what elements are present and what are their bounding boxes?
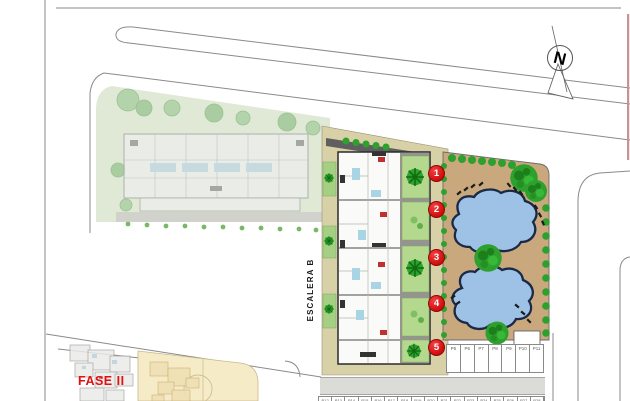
parking-stall: P20 (425, 397, 438, 401)
parking-stall: P26 (504, 397, 517, 401)
parking-stall: P24 (478, 397, 491, 401)
palm-tree-icon (406, 259, 424, 277)
bush-icon (485, 321, 508, 344)
right-road-curb-outer (578, 171, 630, 401)
bush-icon (474, 244, 502, 272)
fase-ii-label: FASE II (78, 374, 125, 388)
parking-row-upper: P5 P6 P7 P8 P9 P10 P11 (446, 344, 544, 373)
parking-stall: P14 (345, 397, 358, 401)
site-plan: N 1 2 3 4 5 ESCALERA B FASE II P5 P6 P7 … (0, 0, 630, 401)
bush-icon (525, 180, 547, 202)
plan-marker-2: 2 (428, 201, 445, 218)
parking-stall: P25 (491, 397, 504, 401)
parking-stall: P19 (412, 397, 425, 401)
plan-marker-3: 3 (428, 249, 445, 266)
parking-stall: P15 (359, 397, 372, 401)
bottom-left-area (70, 345, 258, 401)
parking-stall: P28 (531, 397, 544, 401)
parking-stall: P17 (385, 397, 398, 401)
parking-stall: P7 (475, 345, 489, 372)
plan-marker-4: 4 (428, 295, 445, 312)
pool-north (452, 190, 536, 253)
parking-stall: P18 (398, 397, 411, 401)
palm-tree-icon (406, 168, 424, 186)
pool-south (452, 266, 532, 329)
parking-stall: P27 (518, 397, 531, 401)
parking-stall: P12 (319, 397, 332, 401)
right-road-curb-inner (620, 257, 630, 401)
parking-stall: P6 (461, 345, 475, 372)
parking-stall: P21 (438, 397, 451, 401)
parking-stall: P13 (332, 397, 345, 401)
pool-area (441, 152, 550, 345)
phase2-area (96, 86, 330, 232)
parking-row-bottom-clip: P12 P13 P14 P15 P16 P17 P18 P19 P20 P21 … (318, 396, 545, 401)
parking-stall: P23 (465, 397, 478, 401)
curb-corner-small (285, 361, 300, 377)
parking-stall: P5 (447, 345, 461, 372)
parking-stall: P16 (372, 397, 385, 401)
deck-utility-room (514, 331, 540, 345)
parking-stall: P9 (502, 345, 516, 372)
parking-stall: P22 (451, 397, 464, 401)
plan-marker-5: 5 (428, 339, 445, 356)
palm-tree-icon (324, 304, 334, 314)
parking-row-bottom: P12 P13 P14 P15 P16 P17 P18 P19 P20 P21 … (318, 396, 545, 401)
site-plan-drawing: N (0, 0, 630, 401)
parking-stall: P11 (530, 345, 543, 372)
faded-gray-plan (70, 345, 133, 401)
compass-letter: N (552, 48, 569, 69)
plan-marker-1: 1 (428, 165, 445, 182)
phase2-street-trees (126, 222, 319, 233)
parking-stall: P10 (516, 345, 530, 372)
building-escalera-b (323, 138, 430, 365)
driveway-strip (320, 377, 545, 395)
palm-tree-icon (324, 236, 334, 246)
north-arrow-icon: N (548, 26, 574, 99)
escalera-b-label: ESCALERA B (306, 250, 318, 330)
phase2-building (116, 134, 330, 222)
palm-tree-icon (324, 173, 334, 183)
parking-stall: P8 (489, 345, 503, 372)
right-edge-red-line (627, 14, 629, 160)
